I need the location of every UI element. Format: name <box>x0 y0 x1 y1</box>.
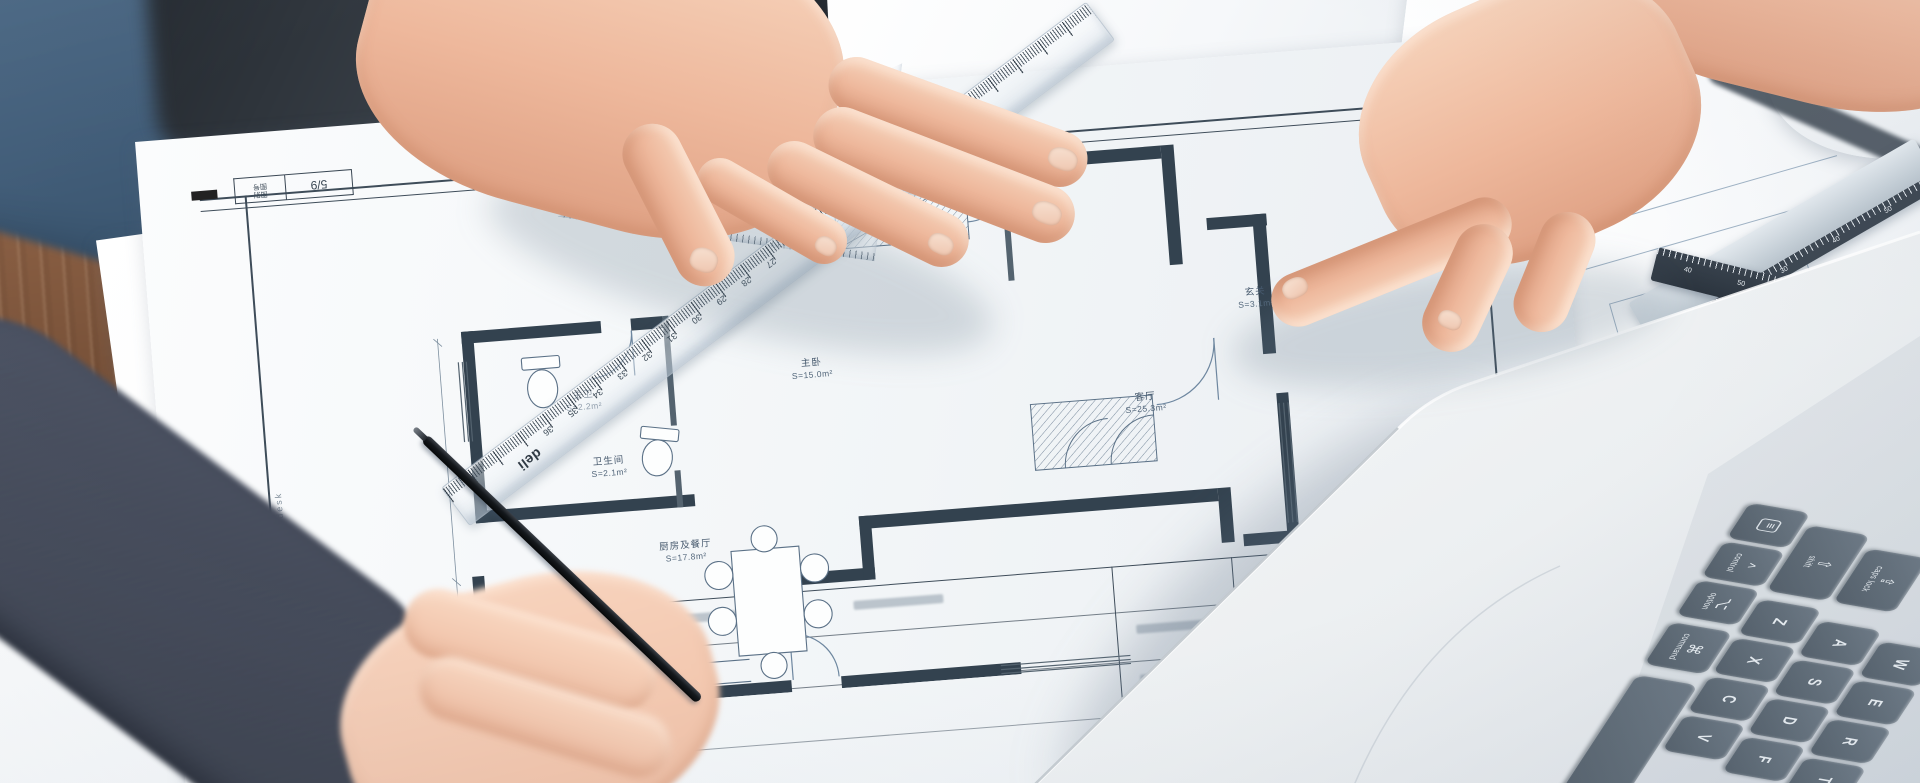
pen-tip <box>412 426 428 441</box>
photo-architects-desk: { "blueprint": { "sheet": { "number": "5… <box>0 0 1920 783</box>
foreground-person <box>0 0 1920 783</box>
